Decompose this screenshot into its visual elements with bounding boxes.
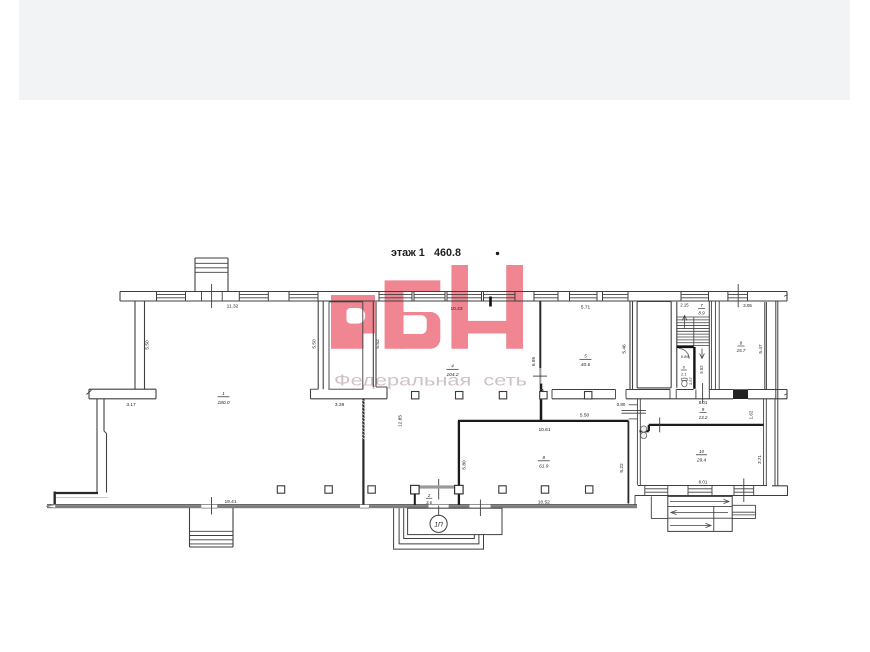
svg-text:3.17: 3.17 [126, 402, 136, 408]
svg-text:0.80: 0.80 [617, 402, 626, 407]
svg-text:5.50: 5.50 [580, 413, 590, 419]
svg-text:3.05: 3.05 [743, 303, 752, 308]
svg-text:19.41: 19.41 [224, 499, 236, 505]
svg-text:12.85: 12.85 [398, 415, 404, 427]
svg-text:этаж 1: этаж 1 [391, 247, 425, 259]
svg-text:180.0: 180.0 [217, 400, 229, 406]
svg-text:5.22: 5.22 [619, 463, 625, 473]
svg-text:40.6: 40.6 [581, 362, 591, 368]
svg-text:6.95: 6.95 [531, 357, 537, 367]
svg-text:15.7: 15.7 [737, 348, 746, 353]
svg-text:8.9: 8.9 [698, 311, 705, 316]
svg-text:13.2: 13.2 [699, 415, 708, 420]
svg-text:61.9: 61.9 [539, 464, 549, 470]
svg-text:8: 8 [543, 455, 546, 460]
svg-text:6: 6 [683, 365, 686, 370]
svg-text:3.71: 3.71 [757, 455, 762, 464]
svg-text:10.43: 10.43 [450, 306, 462, 312]
svg-text:9: 9 [702, 407, 705, 412]
svg-text:1.62: 1.62 [749, 410, 754, 419]
svg-text:5.47: 5.47 [758, 344, 764, 354]
svg-text:5.50: 5.50 [145, 340, 151, 350]
svg-text:5.80: 5.80 [462, 460, 468, 470]
svg-text:5.50: 5.50 [312, 339, 318, 349]
svg-text:1: 1 [222, 391, 225, 396]
svg-text:3.29: 3.29 [335, 402, 345, 408]
svg-text:10: 10 [699, 449, 705, 454]
svg-text:5.71: 5.71 [581, 304, 591, 310]
svg-text:104.2: 104.2 [446, 372, 458, 378]
svg-text:5.46: 5.46 [622, 344, 628, 354]
svg-text:8.01: 8.01 [699, 479, 708, 484]
svg-text:5.52: 5.52 [699, 365, 704, 374]
svg-text:460.8: 460.8 [434, 247, 461, 259]
svg-text:2.57: 2.57 [688, 376, 693, 385]
svg-text:2.15: 2.15 [680, 303, 689, 308]
svg-text:8: 8 [740, 341, 743, 346]
svg-text:5.52: 5.52 [375, 339, 381, 349]
svg-text:2.1: 2.1 [680, 372, 687, 377]
svg-text:29.4: 29.4 [696, 458, 707, 464]
svg-text:0.89: 0.89 [681, 354, 690, 359]
svg-text:1П: 1П [434, 522, 443, 529]
svg-text:11.32: 11.32 [227, 304, 239, 310]
svg-text:7: 7 [700, 303, 703, 308]
svg-text:3.6: 3.6 [426, 500, 432, 505]
svg-text:10.61: 10.61 [538, 427, 550, 433]
svg-text:10.52: 10.52 [538, 499, 550, 505]
svg-text:8.01: 8.01 [699, 400, 708, 405]
svg-text:5: 5 [584, 354, 587, 359]
svg-text:2: 2 [427, 493, 431, 498]
svg-text:4: 4 [451, 364, 454, 369]
